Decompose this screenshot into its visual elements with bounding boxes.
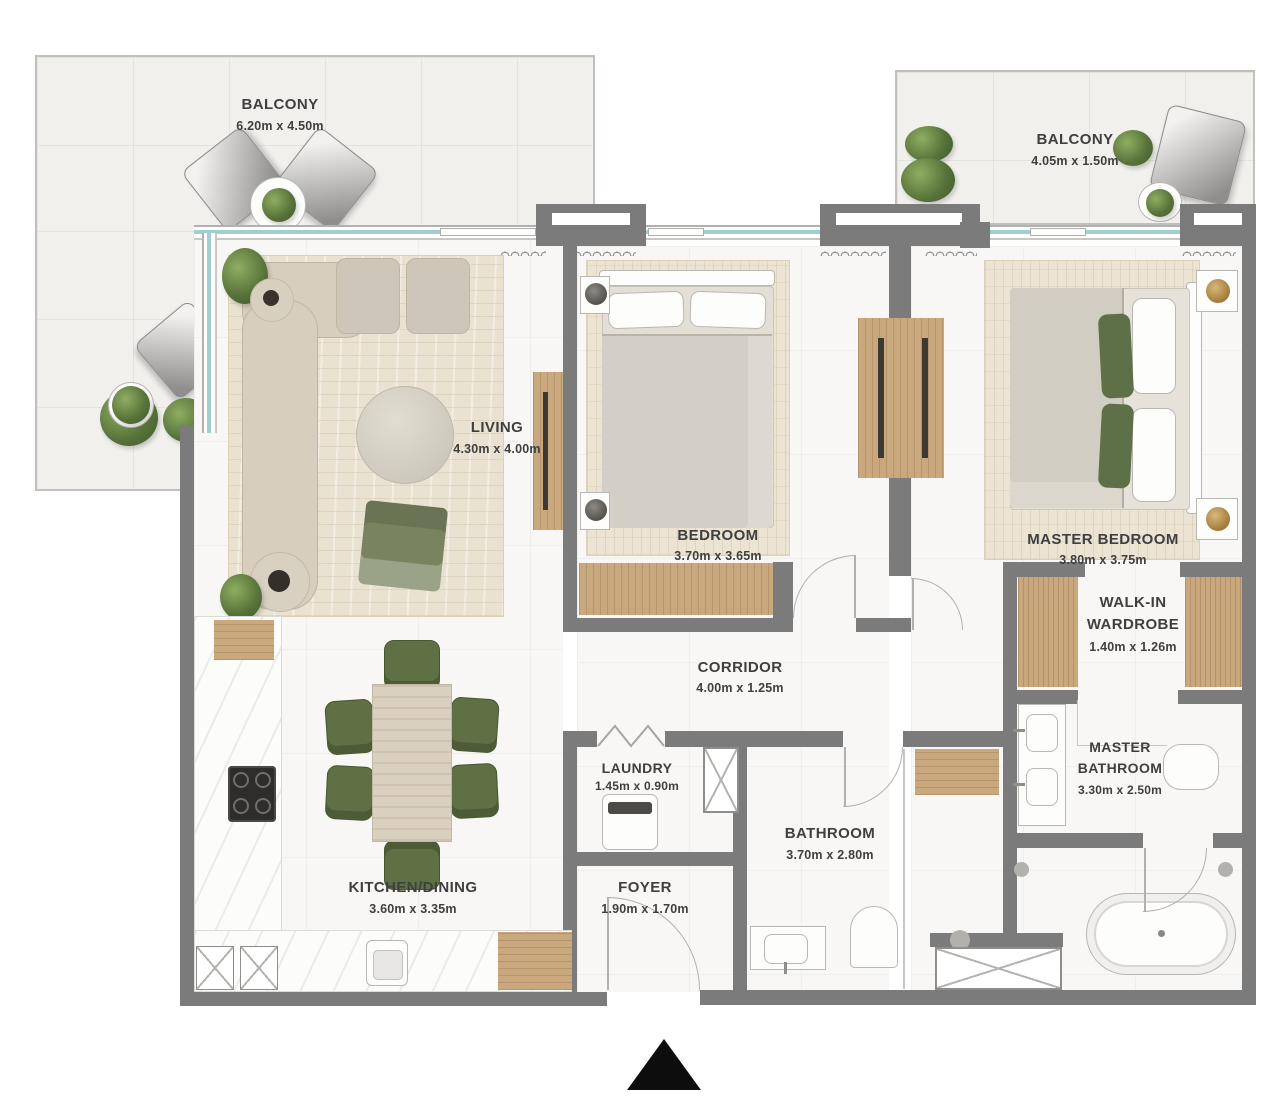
potted-plant-icon [220, 574, 262, 620]
bedroom-door-leaf [854, 555, 856, 618]
dining-chair-icon [448, 696, 500, 753]
curtain-icon [572, 247, 636, 256]
balcony-top-left-label: BALCONY [242, 96, 319, 113]
double-sided-tv-console [858, 318, 944, 478]
living-dims: 4.30m x 4.00m [453, 442, 540, 456]
wall-stub [773, 562, 793, 618]
entrance-triangle-icon [627, 1039, 701, 1090]
service-shaft [935, 947, 1062, 990]
sink-bowl [373, 950, 403, 980]
bathroom-door-leaf [844, 747, 846, 807]
potted-plant-icon [901, 158, 955, 202]
sliding-door-marker [648, 228, 704, 236]
wall-wardrobe-bath [1003, 690, 1078, 704]
sliding-door-marker [440, 228, 536, 236]
dining-chair-icon [325, 765, 376, 821]
exterior-wall-left [180, 425, 194, 1006]
curtain-icon [925, 247, 977, 256]
wall-pier [820, 204, 980, 246]
pillow-icon [607, 291, 684, 330]
washing-machine-panel [608, 802, 652, 814]
walk-in-wardrobe-dims: 1.40m x 1.26m [1089, 640, 1176, 654]
wall-wardrobe-bath [1178, 690, 1242, 704]
dining-chair-icon [324, 698, 376, 755]
foyer-label: FOYER [618, 879, 672, 896]
towel-hook-icon [1014, 862, 1029, 877]
corridor-dims: 4.00m x 1.25m [696, 681, 783, 695]
master-bathroom-dims: 3.30m x 2.50m [1078, 783, 1162, 797]
lamp-icon [1206, 279, 1230, 303]
wall-masterbath-south [1003, 833, 1143, 848]
curtain-icon [1182, 247, 1236, 256]
exterior-wall-bottom [700, 990, 1256, 1005]
burner-icon [233, 798, 249, 814]
wall-bedroom-south-cap [856, 618, 911, 632]
lamp-icon [1206, 507, 1230, 531]
pier-window-slit [1194, 213, 1244, 225]
shower-glass-line [903, 749, 905, 989]
wall-corridor-south [665, 731, 737, 747]
candle-icon [263, 290, 279, 306]
balcony-top-right-label: BALCONY [1037, 131, 1114, 148]
shower-bench [915, 749, 999, 795]
curtain-icon [820, 247, 886, 256]
tv-icon [543, 392, 548, 510]
bathroom-dims: 3.70m x 2.80m [786, 848, 873, 862]
wall-bedroom-south [563, 618, 793, 632]
faucet-icon [1013, 783, 1025, 786]
pillow-icon [689, 291, 766, 330]
bathroom-label: BATHROOM [785, 825, 875, 842]
sink-basin-icon [1026, 714, 1058, 752]
faucet-icon [1013, 729, 1025, 732]
pillow-icon [1132, 408, 1176, 502]
living-side-window [202, 233, 217, 433]
burner-icon [255, 772, 271, 788]
lamp-icon [585, 499, 607, 521]
kitchen-dining-dims: 3.60m x 3.35m [369, 902, 456, 916]
burner-icon [255, 798, 271, 814]
walk-in-wardrobe-label-1: WALK-IN [1100, 594, 1167, 611]
master-bathroom-label-2: BATHROOM [1078, 760, 1163, 776]
tub-drain-icon [1158, 930, 1165, 937]
potted-plant-icon [112, 386, 150, 424]
pillow-green-icon [1098, 403, 1134, 489]
wall-master-south [1180, 562, 1242, 577]
cabinet-door [240, 946, 278, 990]
foyer-dims: 1.90m x 1.70m [601, 902, 688, 916]
corridor-label: CORRIDOR [698, 659, 783, 676]
laundry-label: LAUNDRY [602, 760, 673, 776]
tv-icon [878, 338, 884, 458]
bedroom-dims: 3.70m x 3.65m [674, 549, 761, 563]
tv-icon [922, 338, 928, 458]
sink-basin-icon [764, 934, 808, 964]
walk-in-wardrobe-label-2: WARDROBE [1087, 616, 1179, 633]
kitchen-dining-label: KITCHEN/DINING [349, 879, 478, 896]
dining-chair-icon [449, 763, 500, 819]
master-bathroom-label-1: MASTER [1089, 739, 1151, 755]
candle-icon [268, 570, 290, 592]
wall-living-bedroom [563, 246, 577, 632]
wall-laundry-foyer [563, 852, 733, 866]
master-bedroom-door-leaf [912, 578, 914, 630]
wardrobe-unit [1185, 577, 1242, 687]
pillow-green-icon [1098, 313, 1134, 399]
pier-window-slit [552, 213, 630, 225]
pillow-icon [1132, 298, 1176, 394]
toilet-icon [1163, 744, 1219, 790]
round-pouf [356, 386, 454, 484]
towel-hook-icon [1218, 862, 1233, 877]
exterior-wall-right [1242, 204, 1256, 1005]
armchair-icon [336, 258, 400, 334]
bedroom-wardrobe [579, 563, 773, 615]
burner-icon [233, 772, 249, 788]
kitchen-cabinet [498, 932, 572, 990]
laundry-dims: 1.45m x 0.90m [595, 779, 679, 793]
master-bedroom-dims: 3.80m x 3.75m [1059, 553, 1146, 567]
master-bathroom-door-leaf [1144, 848, 1146, 912]
balcony-top-right-dims: 4.05m x 1.50m [1031, 154, 1118, 168]
dining-chair-icon [384, 640, 440, 690]
armchair-icon [406, 258, 470, 334]
bed-headboard [599, 270, 775, 286]
toilet-icon [850, 906, 898, 968]
service-shaft [703, 747, 739, 813]
bedroom-label: BEDROOM [677, 527, 758, 544]
dining-table [372, 684, 452, 842]
curtain-icon [500, 247, 546, 256]
living-label: LIVING [471, 419, 523, 436]
bed-duvet [602, 334, 772, 528]
bathroom-door-arc [843, 747, 903, 807]
pier-window-slit [836, 213, 962, 225]
potted-plant-icon [1113, 130, 1153, 166]
balcony-top-left-dims: 6.20m x 4.50m [236, 119, 323, 133]
kitchen-cabinet [214, 620, 274, 660]
potted-plant-icon [1146, 189, 1174, 217]
wall-pier-step [960, 222, 990, 248]
sliding-door-marker [1030, 228, 1086, 236]
wardrobe-unit [1018, 577, 1078, 687]
sink-basin-icon [1026, 768, 1058, 806]
master-bedroom-label: MASTER BEDROOM [1027, 531, 1178, 548]
faucet-icon [784, 962, 787, 974]
wall-pier [536, 204, 646, 246]
cabinet-door [196, 946, 234, 990]
wall-corridor-south [737, 731, 843, 747]
ottoman-green [358, 500, 448, 592]
lamp-icon [585, 283, 607, 305]
wall-masterbath-south [1213, 833, 1242, 848]
floor-plan: BALCONY 6.20m x 4.50m BALCONY 4.05m x 1.… [0, 0, 1283, 1100]
exterior-wall-bottom [180, 992, 607, 1006]
bifold-door-icon [597, 722, 665, 748]
potted-plant-icon [905, 126, 953, 162]
wall-corridor-south [903, 731, 1013, 747]
potted-plant-icon [262, 188, 296, 222]
